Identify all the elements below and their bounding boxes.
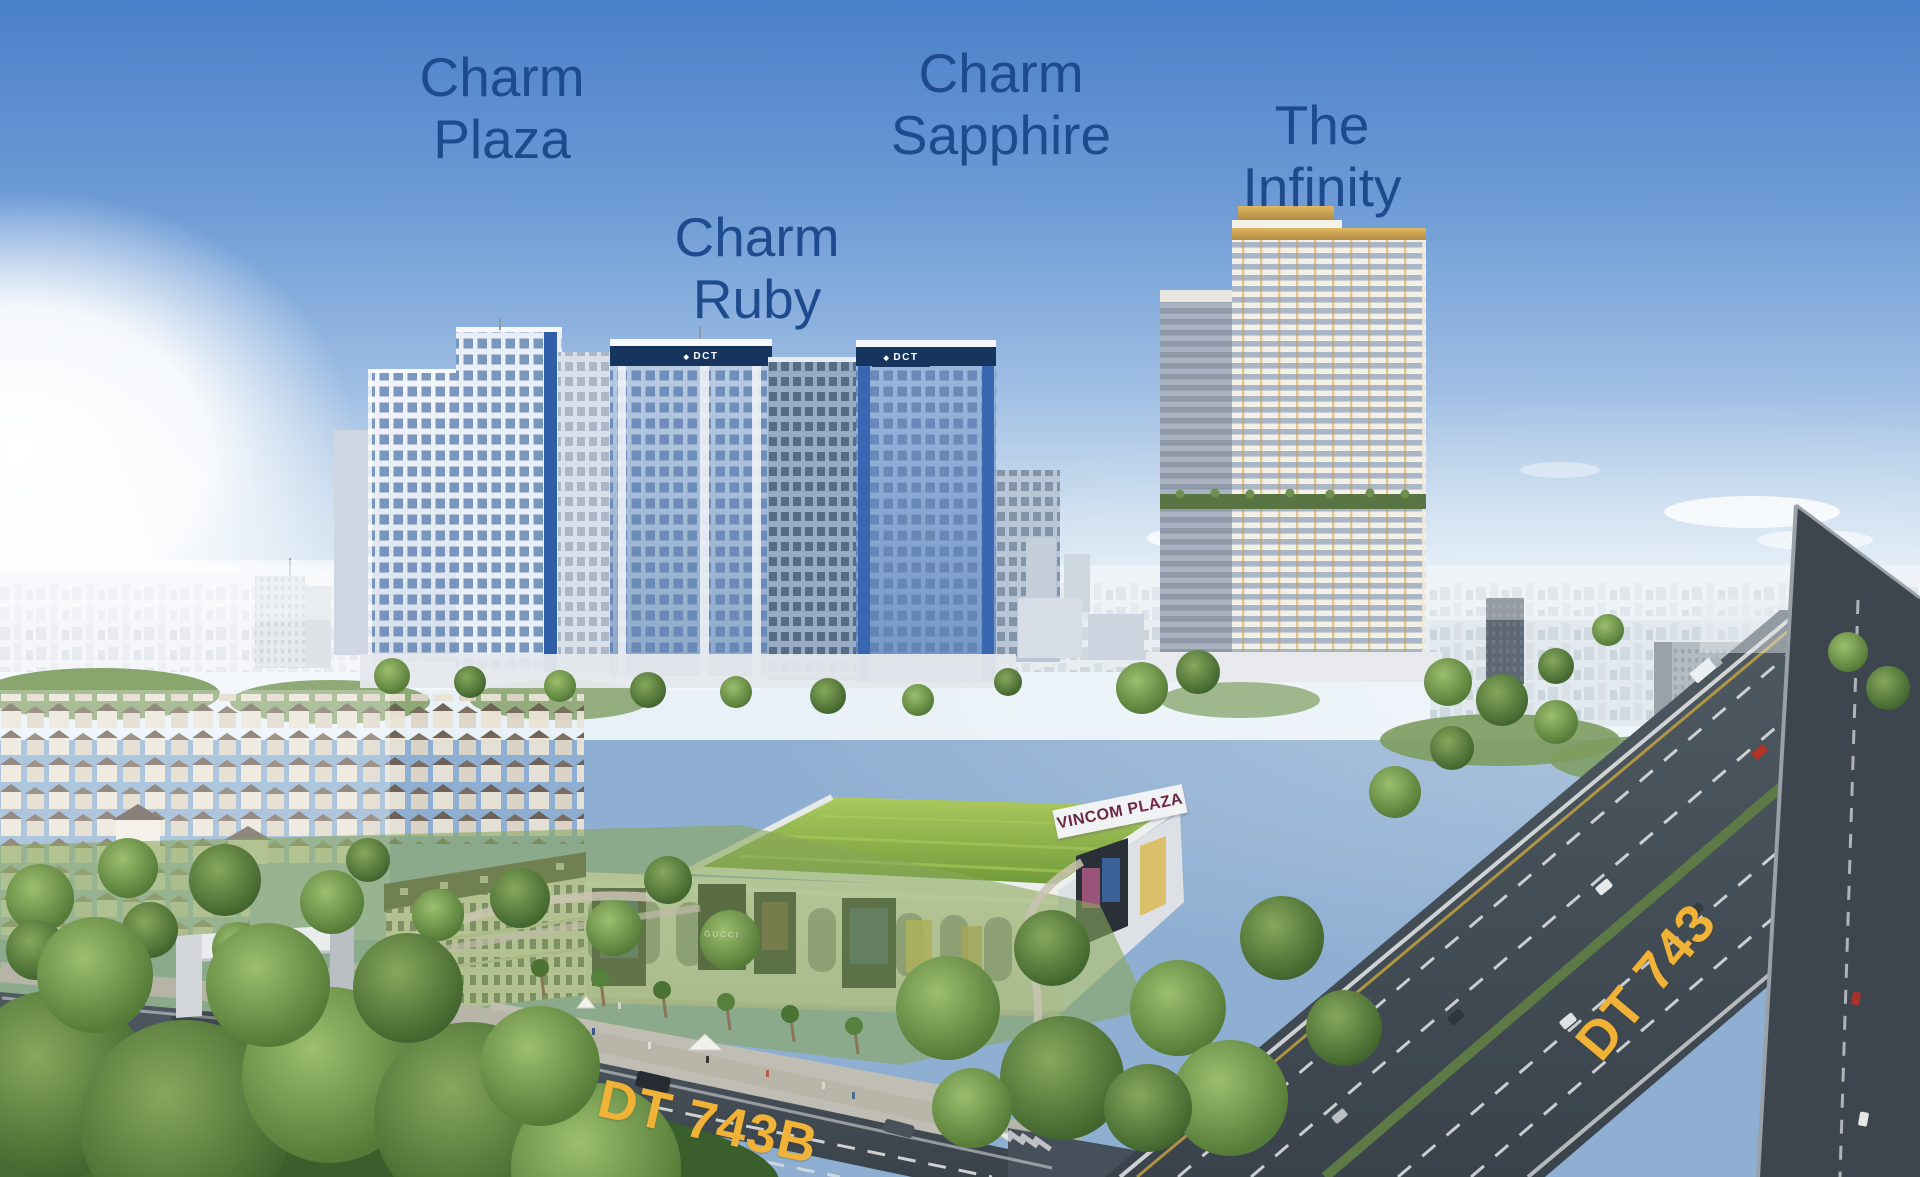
dct-diamond-icon: ◆ <box>684 353 691 361</box>
label-line: Plaza <box>419 108 584 170</box>
dct-diamond-icon: ◆ <box>884 354 891 362</box>
dct-logo-banner: ◆ DCT <box>872 348 930 367</box>
label-charm-plaza: Charm Plaza <box>419 46 584 170</box>
charm-tower-5-sapphire <box>856 340 996 682</box>
label-line: Sapphire <box>891 104 1111 166</box>
charm-tower-1 <box>368 369 460 661</box>
aerial-rendering-scene: Charm Plaza Charm Ruby Charm Sapphire Th… <box>0 0 1920 1177</box>
label-charm-ruby: Charm Ruby <box>674 206 839 330</box>
label-line: Ruby <box>674 268 839 330</box>
dct-logo-text: DCT <box>693 351 718 362</box>
dct-logo-text: DCT <box>893 352 918 363</box>
charm-tower-2 <box>456 327 562 672</box>
label-line: Charm <box>891 42 1111 104</box>
label-line: Infinity <box>1243 156 1402 218</box>
label-the-infinity: The Infinity <box>1243 94 1402 218</box>
label-line: Charm <box>419 46 584 108</box>
label-line: The <box>1243 94 1402 156</box>
charm-tower-4 <box>768 357 858 680</box>
label-charm-sapphire: Charm Sapphire <box>891 42 1111 166</box>
label-line: Charm <box>674 206 839 268</box>
dct-logo-banner: ◆ DCT <box>672 347 730 366</box>
charm-tower-3-dct <box>558 339 772 676</box>
billboard-brand-text: GUCCI <box>699 929 745 940</box>
